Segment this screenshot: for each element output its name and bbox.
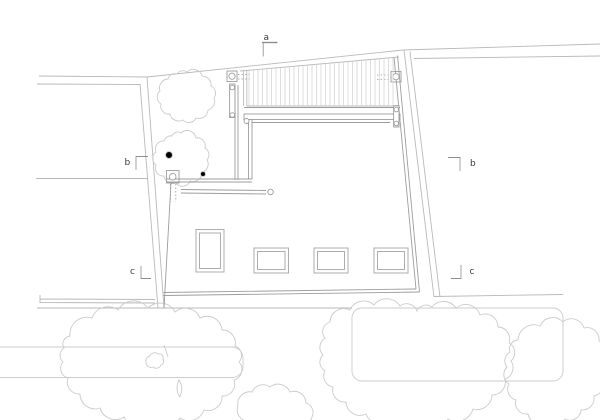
- section-marker-c-left: c: [130, 266, 151, 279]
- building-roof: [164, 56, 420, 309]
- post-bolt-icon: [229, 73, 235, 79]
- hedge-rect-right: [352, 308, 563, 381]
- street-upper-edge: [403, 44, 600, 50]
- hidden-line: [377, 75, 390, 80]
- hedge-strip-left: [0, 347, 243, 378]
- tree-canopy: [504, 318, 600, 420]
- column-end-marker: [394, 121, 399, 126]
- west-wall-lower: [164, 183, 171, 308]
- wall-end-marker: [268, 189, 274, 195]
- lower-garden-wall: [181, 190, 266, 195]
- tree-canopy: [157, 69, 215, 122]
- tree-canopy: [320, 299, 515, 420]
- boundary-west: [140, 77, 164, 308]
- section-label: c: [470, 267, 475, 277]
- section-label: a: [264, 33, 270, 43]
- tree-canopy: [153, 131, 209, 187]
- street-trees: [60, 299, 600, 420]
- boundary-east: [404, 50, 440, 297]
- beam-end-marker: [244, 119, 249, 124]
- section-marker-b-left: b: [125, 156, 149, 170]
- roof-east-parapet: [394, 56, 420, 293]
- hidden-line: [171, 184, 176, 202]
- section-label: c: [130, 267, 135, 277]
- section-marker-b-right: b: [448, 157, 476, 171]
- tree-canopy: [237, 384, 313, 420]
- neighbor-right-top-edge: [414, 56, 600, 59]
- garden-trees: [153, 69, 216, 186]
- boundary-north: [147, 50, 403, 77]
- tree-trunk-detail: [201, 172, 206, 177]
- neighbor-right-bottom-edge: [434, 295, 563, 297]
- skylights: [196, 230, 408, 274]
- tree-sprout-detail: [177, 380, 182, 397]
- tree-trunk-detail: [166, 152, 173, 159]
- north-garden-wall: [167, 179, 252, 182]
- section-label: b: [125, 158, 131, 168]
- pergola-left-frame: [244, 70, 247, 106]
- architectural-roof-plan: a b b c c: [0, 0, 600, 420]
- skylight: [314, 248, 348, 273]
- skylight: [254, 248, 289, 273]
- neighbor-left-top-edge: [37, 76, 147, 85]
- hedges: [0, 308, 563, 381]
- pergola-slats: [249, 58, 393, 107]
- tree-canopy: [60, 301, 242, 420]
- section-marker-a: a: [262, 33, 278, 57]
- post-bolt-icon: [169, 173, 176, 180]
- skylight: [196, 230, 224, 273]
- inner-wall: [249, 119, 253, 179]
- roof-south-parapet: [164, 289, 420, 296]
- section-marker-c-right: c: [451, 265, 475, 279]
- tree-canopy-detail: [146, 353, 164, 369]
- streets-and-parcels: [36, 44, 600, 308]
- section-markers: a b b c c: [125, 33, 477, 279]
- column-end-marker: [230, 113, 235, 118]
- terrace-beam: [244, 114, 400, 120]
- post-bolt-icon: [393, 74, 399, 80]
- column-end-marker: [394, 107, 399, 112]
- skylight: [374, 248, 408, 273]
- column-end-marker: [230, 85, 235, 90]
- section-label: b: [470, 159, 476, 169]
- neighbor-left-lower-corner: [40, 295, 155, 303]
